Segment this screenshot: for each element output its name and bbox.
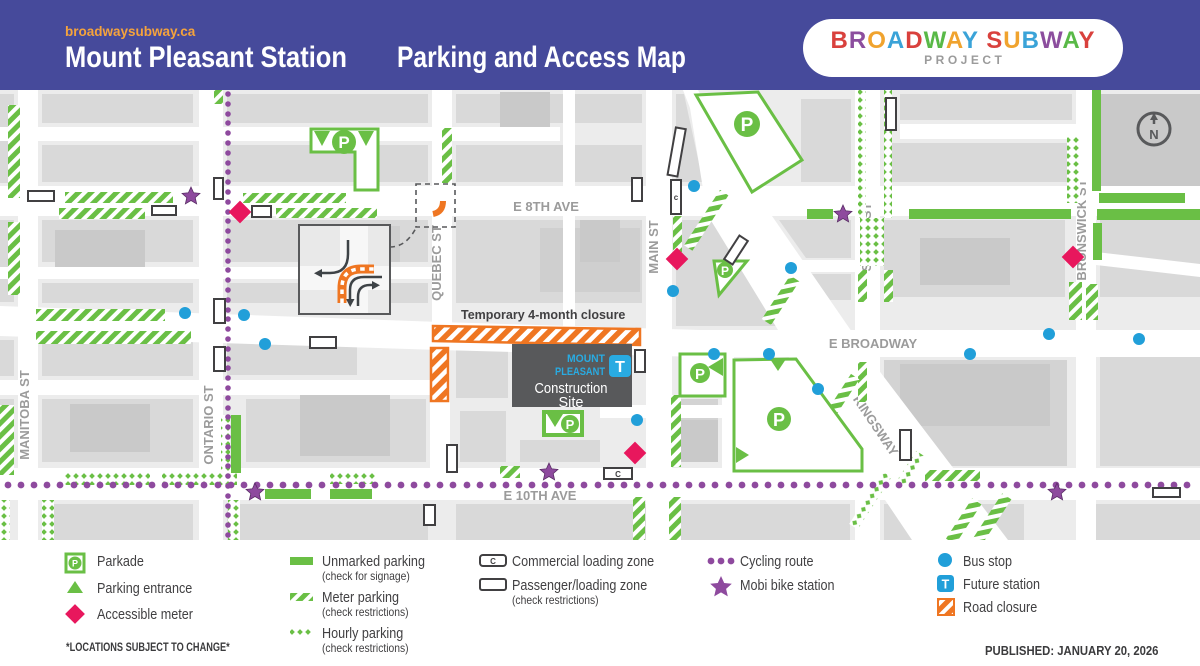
svg-text:Site: Site xyxy=(559,395,584,411)
svg-text:C: C xyxy=(615,470,621,479)
svg-text:MANITOBA ST: MANITOBA ST xyxy=(17,370,32,460)
svg-text:ONTARIO ST: ONTARIO ST xyxy=(201,385,216,464)
svg-text:E 8TH AVE: E 8TH AVE xyxy=(513,199,579,214)
svg-text:E BROADWAY: E BROADWAY xyxy=(829,336,918,351)
svg-text:P: P xyxy=(72,559,78,569)
svg-text:T: T xyxy=(942,578,950,592)
svg-text:Temporary 4-month closure: Temporary 4-month closure xyxy=(461,308,625,322)
svg-text:MAIN ST: MAIN ST xyxy=(646,220,661,274)
svg-text:c: c xyxy=(674,193,679,202)
svg-text:P: P xyxy=(338,133,349,152)
svg-text:QUEBEC ST: QUEBEC ST xyxy=(429,225,444,301)
svg-text:P: P xyxy=(566,417,575,432)
svg-text:PLEASANT: PLEASANT xyxy=(555,366,605,378)
svg-text:MOUNT: MOUNT xyxy=(567,353,605,365)
svg-text:C: C xyxy=(490,557,496,566)
svg-text:T: T xyxy=(615,359,625,376)
svg-text:P: P xyxy=(695,366,705,383)
svg-text:E 10TH AVE: E 10TH AVE xyxy=(504,488,577,503)
svg-text:P: P xyxy=(773,410,785,430)
svg-text:P: P xyxy=(741,115,754,136)
svg-text:P: P xyxy=(721,264,729,278)
svg-text:N: N xyxy=(1149,127,1158,142)
